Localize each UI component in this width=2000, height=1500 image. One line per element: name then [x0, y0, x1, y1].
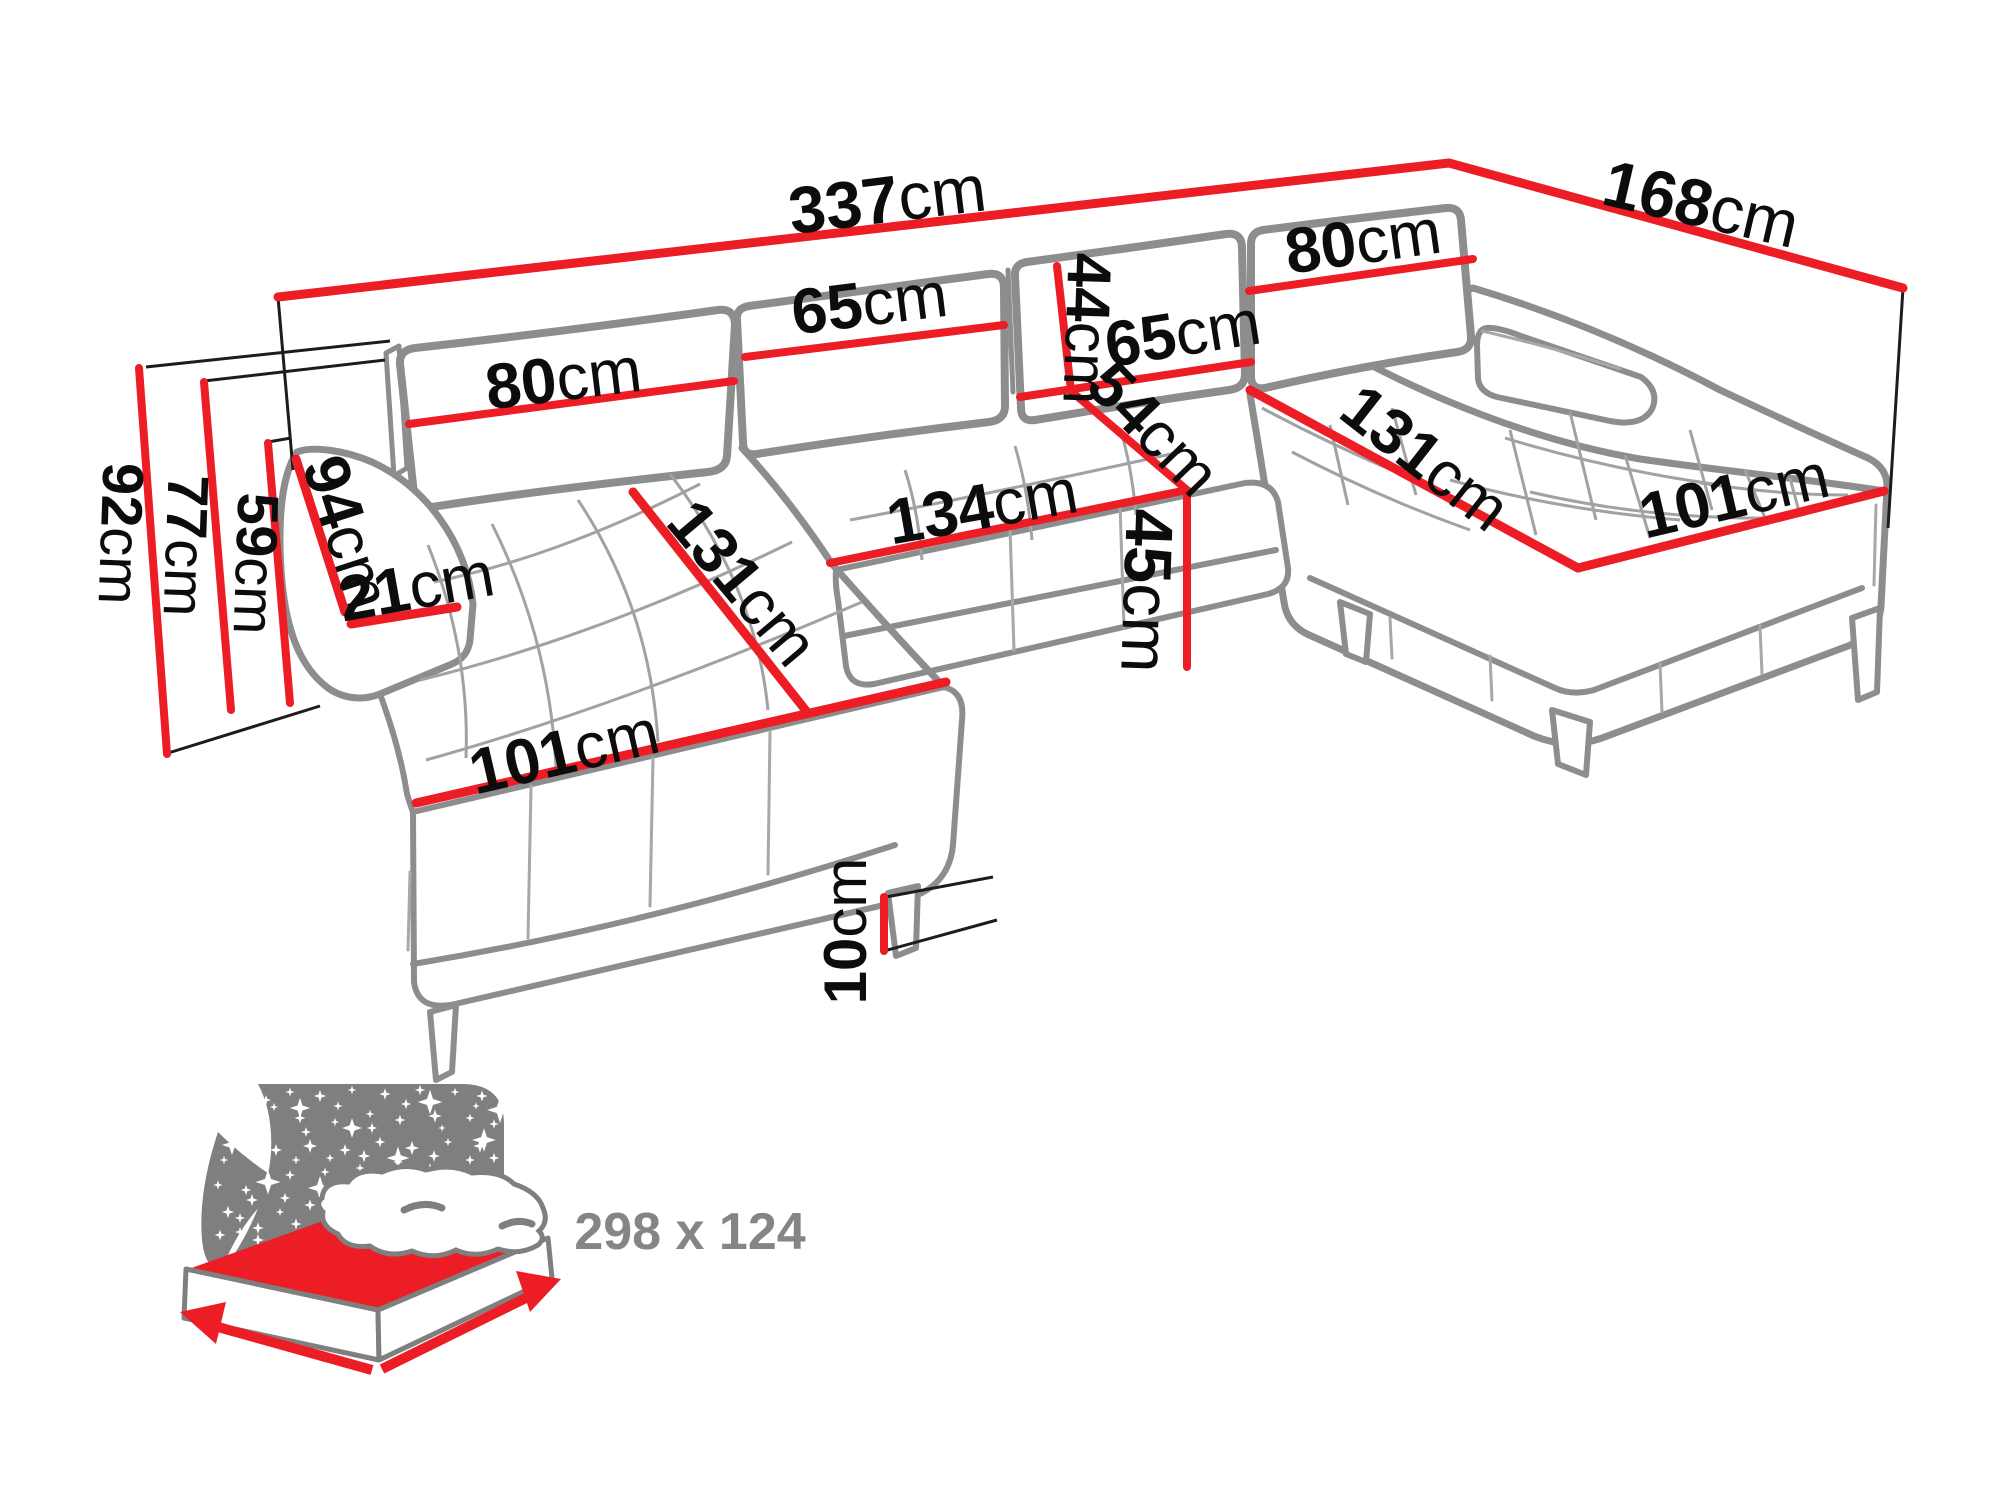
svg-text:92cm: 92cm — [86, 462, 156, 606]
svg-text:10cm: 10cm — [812, 858, 879, 1005]
svg-text:45cm: 45cm — [1106, 508, 1187, 674]
svg-text:298 x 124: 298 x 124 — [574, 1203, 805, 1261]
svg-text:59cm: 59cm — [221, 492, 291, 636]
svg-text:77cm: 77cm — [151, 474, 221, 618]
